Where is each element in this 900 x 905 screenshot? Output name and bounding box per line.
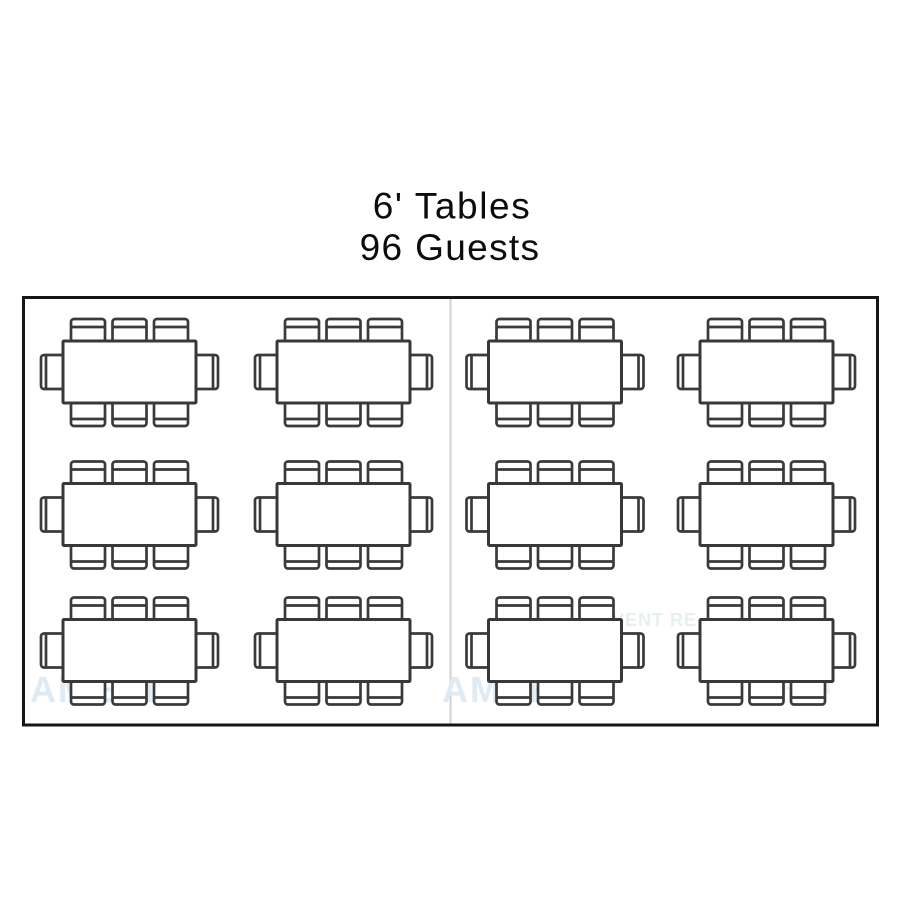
svg-text:96 Guests: 96 Guests bbox=[360, 227, 541, 268]
svg-text:6' Tables: 6' Tables bbox=[373, 186, 532, 227]
svg-text:VENT RE: VENT RE bbox=[612, 610, 697, 630]
